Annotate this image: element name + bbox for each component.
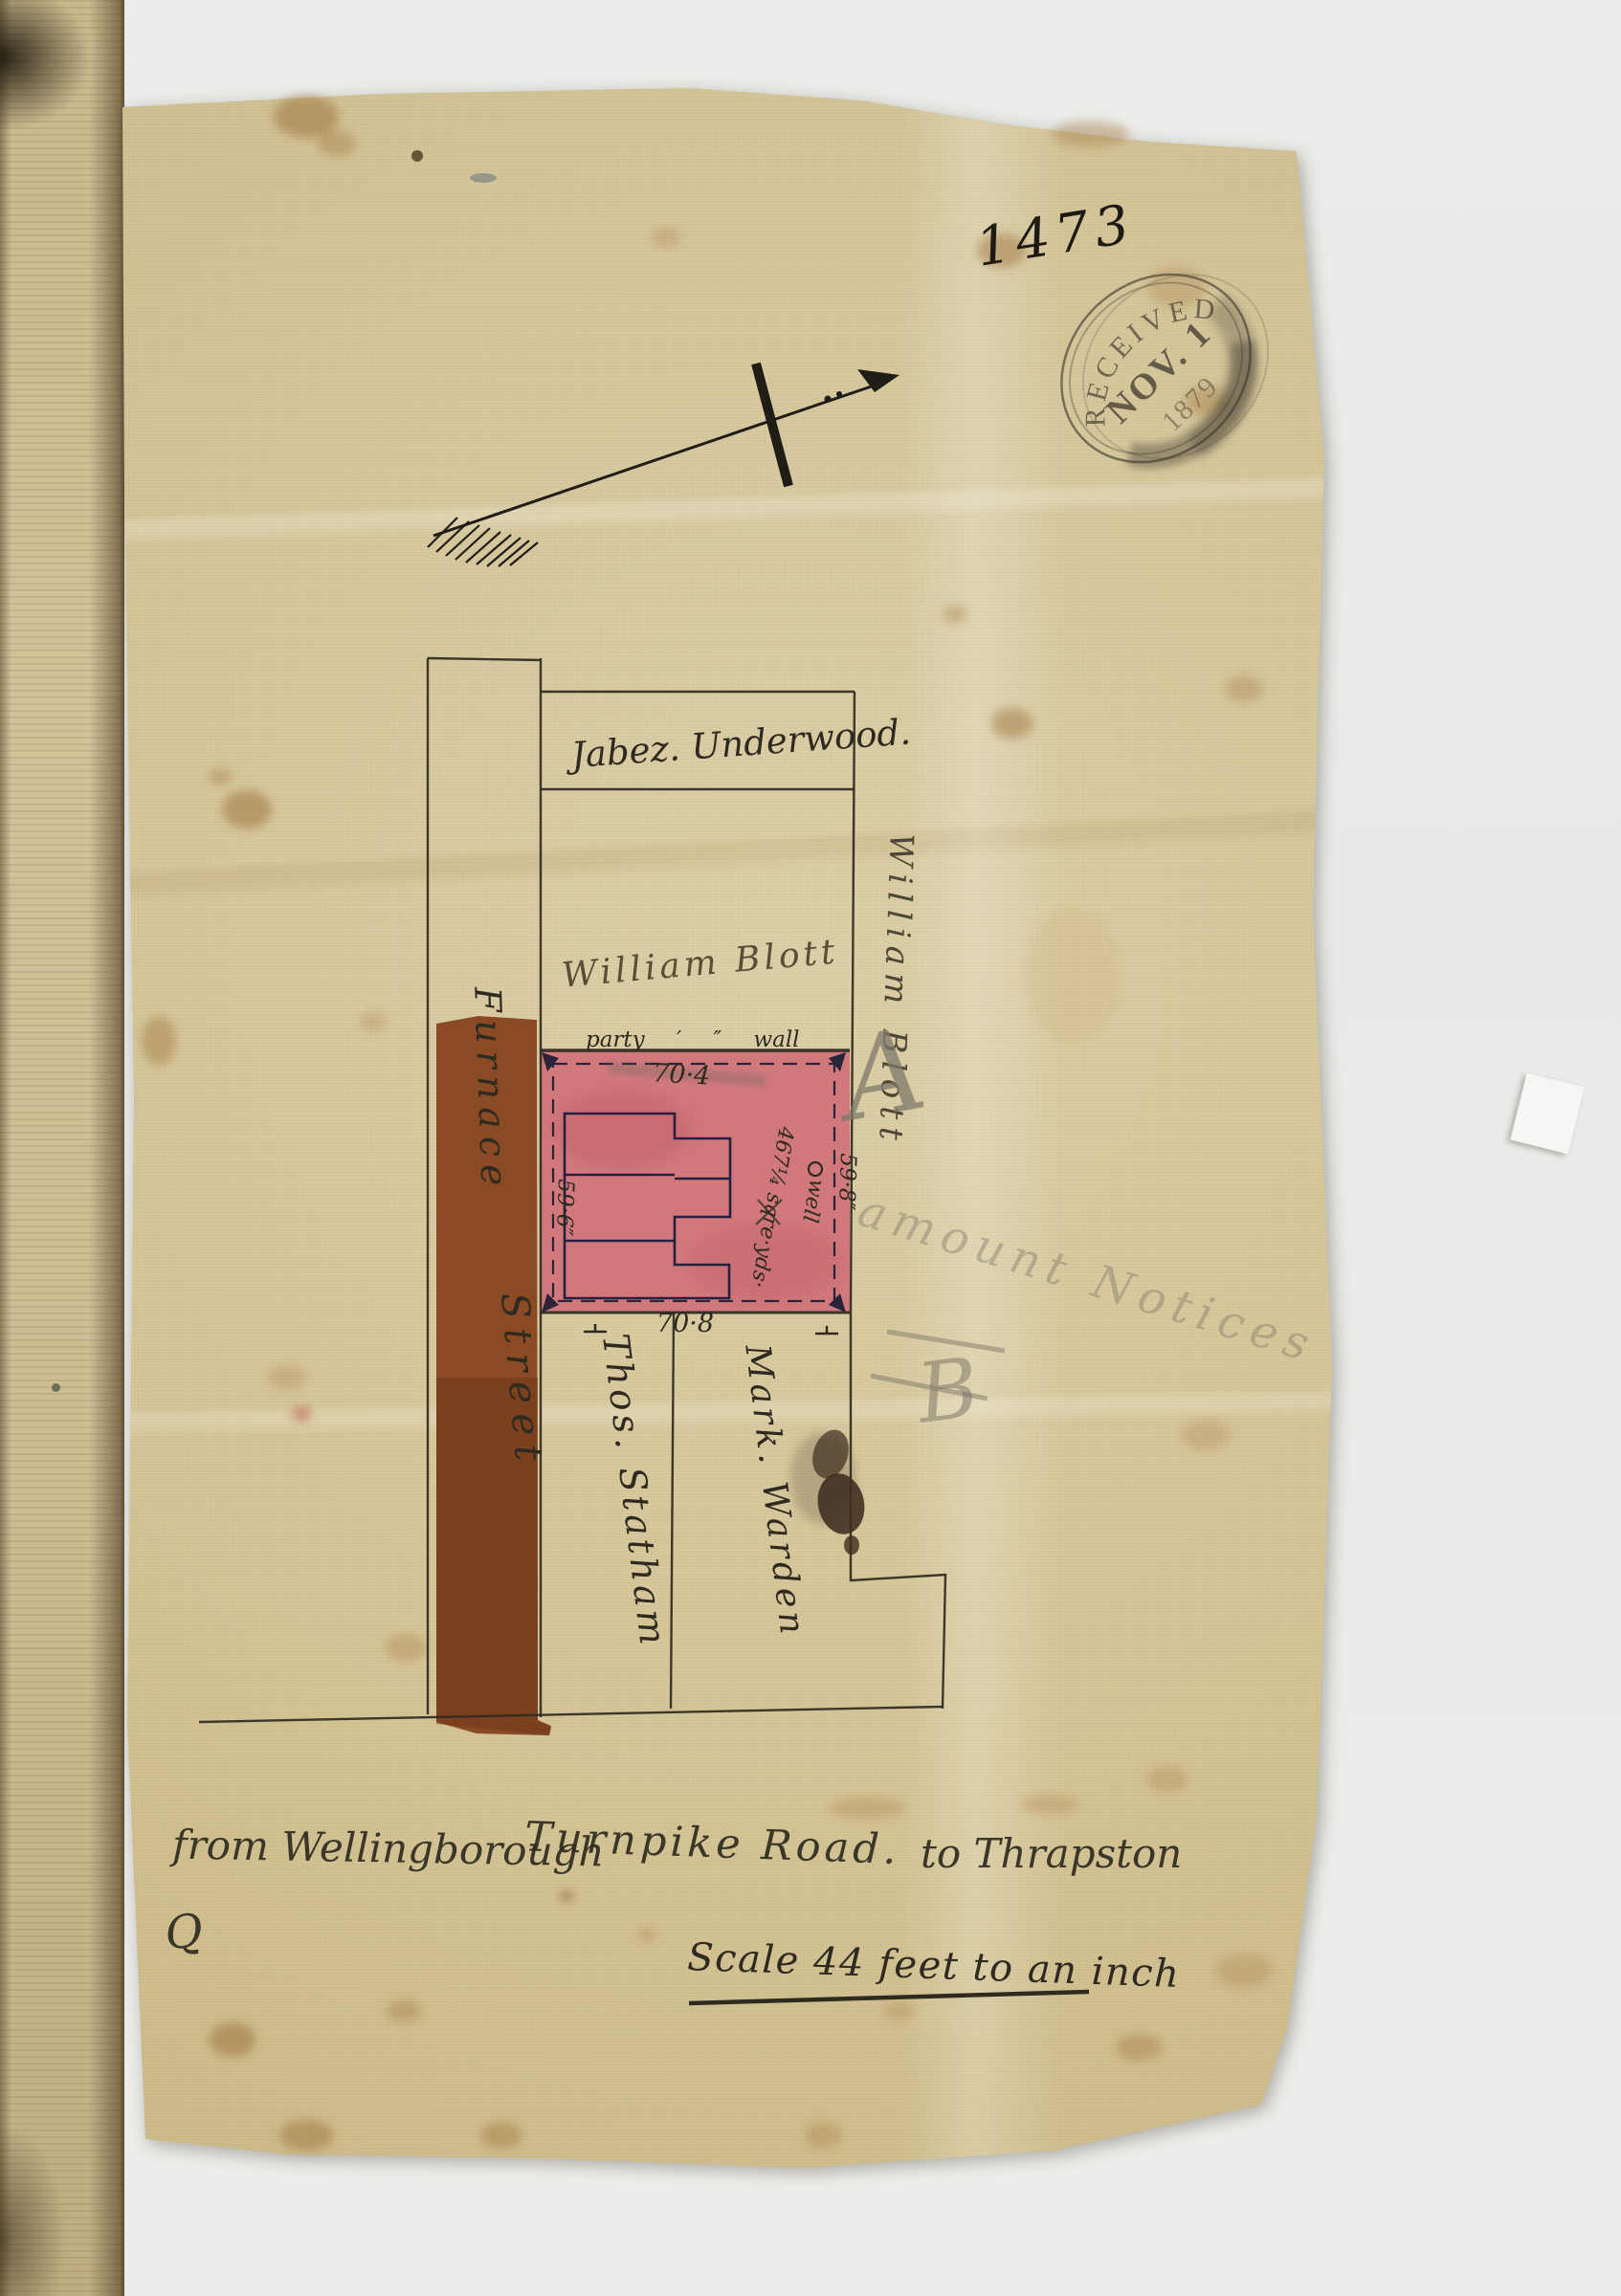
- document-shadow-wrap: [0, 0, 1621, 2296]
- linen-plan-sheet: [105, 72, 1349, 2186]
- scanned-archive-page: { "plan_number": "1473", "stamp": { "top…: [0, 0, 1621, 2296]
